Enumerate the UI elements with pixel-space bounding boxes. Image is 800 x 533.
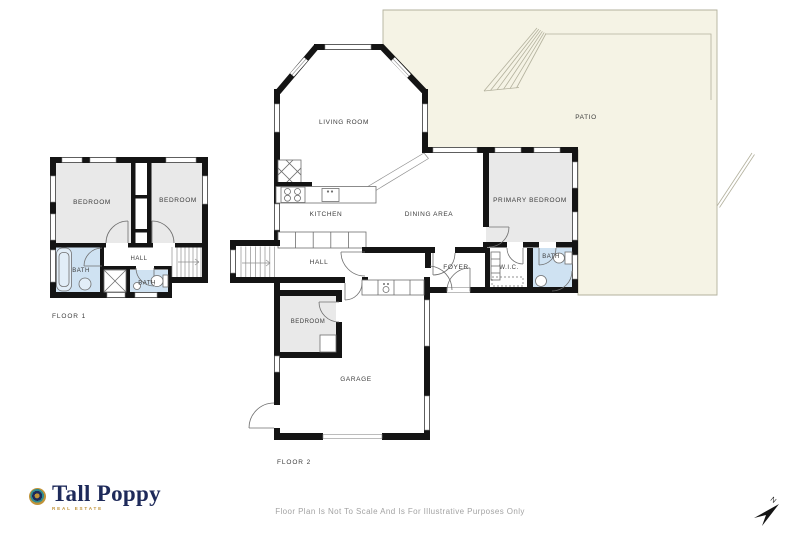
bath-main-label: BATH <box>72 268 90 274</box>
kitchen-label: KITCHEN <box>310 211 343 218</box>
dining-area-label: DINING AREA <box>405 211 454 218</box>
wic-label: W.I.C. <box>499 265 518 271</box>
bedroom-floor2: BEDROOM <box>277 290 342 358</box>
garage-door <box>323 435 382 439</box>
shower-floor1 <box>104 270 126 292</box>
bath-small-label: BATH <box>138 281 156 287</box>
floor-plan-canvas: PATIO <box>0 0 800 533</box>
primary-bedroom-label: PRIMARY BEDROOM <box>493 197 567 204</box>
tall-poppy-icon <box>29 488 46 505</box>
bath1-sink <box>79 278 91 290</box>
hall-floor1-label: HALL <box>130 256 147 262</box>
floor-plan-page: PATIO <box>0 0 800 533</box>
laundry-cabinets <box>362 280 424 295</box>
patio-label: PATIO <box>575 114 597 121</box>
disclaimer-text: Floor Plan Is Not To Scale And Is For Il… <box>0 507 800 516</box>
living-room: LIVING ROOM <box>262 44 429 246</box>
kitchen: KITCHEN <box>274 182 376 248</box>
hall-floor2-label: HALL <box>310 259 329 266</box>
north-label: N <box>769 496 777 505</box>
floor2-label: FLOOR 2 <box>277 459 311 466</box>
bedroom-floor2-label: BEDROOM <box>291 319 326 325</box>
bedroom-right-label: BEDROOM <box>159 197 197 204</box>
brand-name: Tall Poppy <box>52 484 161 504</box>
bath-floor2: BATH <box>533 248 572 291</box>
stairs-floor2 <box>241 247 275 278</box>
foyer: FOYER <box>425 247 487 293</box>
bath2-sink <box>536 276 547 287</box>
foyer-label: FOYER <box>443 264 468 271</box>
living-room-label: LIVING ROOM <box>319 119 369 126</box>
bathtub <box>57 248 72 291</box>
garage-label: GARAGE <box>340 376 371 383</box>
bedroom-left-label: BEDROOM <box>73 199 111 206</box>
bedroom2-closet <box>320 335 336 352</box>
floor1-plan: BEDROOM BEDROOM BATH HALL BATH FLOOR 1 <box>50 157 208 320</box>
kitchen-island-cabinets <box>278 232 366 248</box>
floor1-label: FLOOR 1 <box>52 313 86 320</box>
bath-floor2-label: BATH <box>542 254 560 260</box>
patio-gate-line <box>717 153 755 208</box>
